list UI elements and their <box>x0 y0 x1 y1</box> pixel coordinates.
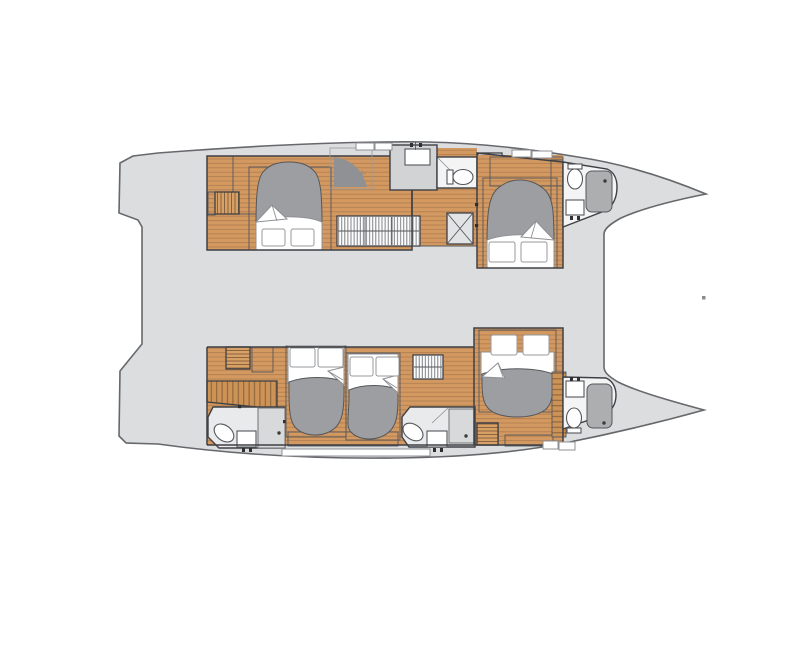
port-forward-cabin <box>475 153 563 268</box>
floor-plan-canvas <box>0 0 800 671</box>
sink <box>566 200 584 215</box>
door-jamb <box>238 405 241 408</box>
sink <box>566 381 584 397</box>
shower-drain <box>602 421 605 424</box>
double-bed <box>256 162 322 250</box>
louver-locker <box>215 192 239 214</box>
stbd-bow-bathroom <box>563 377 616 433</box>
starboard-hull-interior <box>207 328 616 456</box>
pillow <box>376 357 399 376</box>
pillow <box>262 229 285 246</box>
shower-drain <box>464 434 467 437</box>
toilet <box>568 164 583 189</box>
pillow <box>489 242 515 262</box>
catamaran-floor-plan <box>0 0 800 671</box>
shower-pad <box>586 171 612 212</box>
double-bed <box>288 346 344 435</box>
louver-locker <box>477 423 498 445</box>
pillow <box>290 348 315 367</box>
shower <box>586 171 612 212</box>
pillow <box>523 335 549 355</box>
shower-pad <box>449 409 474 443</box>
duvet <box>348 386 398 440</box>
deck-hatch <box>559 442 575 450</box>
pillow <box>521 242 547 262</box>
toilet <box>447 170 473 185</box>
deck-hatch <box>512 150 531 157</box>
shower <box>587 384 612 428</box>
toilet <box>567 408 582 433</box>
deck-hatch <box>543 441 558 449</box>
duvet <box>289 378 344 436</box>
door-jamb <box>475 224 478 227</box>
shower-pad <box>258 408 285 448</box>
door-jamb <box>475 203 478 206</box>
pillow <box>291 229 314 246</box>
hull-window-band <box>282 449 430 456</box>
shower-drain <box>603 179 606 182</box>
pillow <box>491 335 517 355</box>
pillow <box>350 357 373 376</box>
shower-pad <box>587 384 612 428</box>
deck-hatch <box>356 143 374 150</box>
hanging-wardrobe <box>413 355 443 379</box>
sink <box>405 149 430 165</box>
louver-locker <box>226 347 250 369</box>
port-hull-interior <box>207 142 617 268</box>
deck-hatch <box>532 151 552 158</box>
double-bed <box>487 180 554 268</box>
double-bed <box>348 354 399 439</box>
hanging-wardrobe <box>337 216 420 246</box>
deck-hatch <box>375 143 392 150</box>
deck-fitting-dot <box>702 296 706 300</box>
pillow <box>318 348 343 367</box>
shower-drain <box>277 431 280 434</box>
double-bed <box>481 335 554 417</box>
